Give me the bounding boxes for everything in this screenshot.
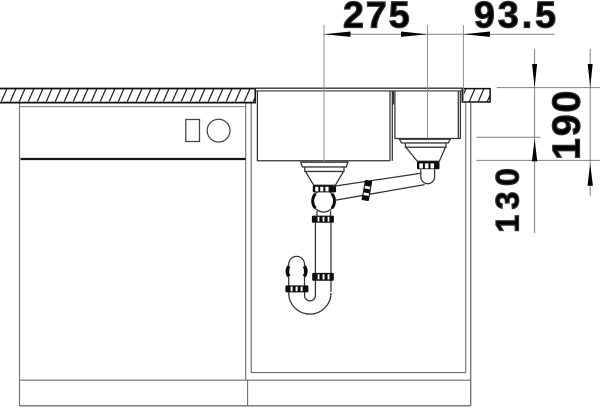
- svg-text:275: 275: [343, 0, 412, 36]
- svg-text:130: 130: [490, 163, 526, 233]
- svg-text:93.5: 93.5: [474, 0, 559, 36]
- svg-text:190: 190: [546, 89, 589, 160]
